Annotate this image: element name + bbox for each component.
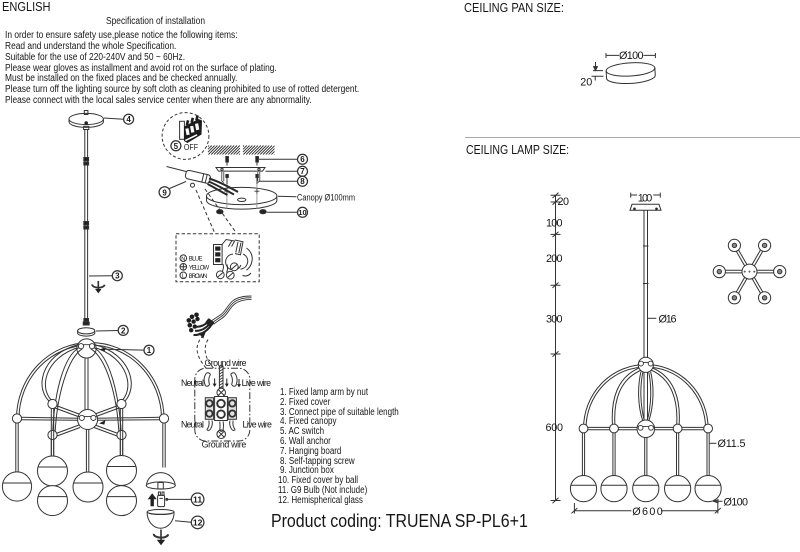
svg-text:BLUE: BLUE	[189, 257, 203, 263]
svg-text:1: 1	[147, 346, 152, 355]
svg-text:Ø100: Ø100	[619, 50, 644, 62]
svg-text:Live wire: Live wire	[243, 419, 272, 429]
svg-text:Ø100: Ø100	[724, 496, 749, 508]
svg-text:11: 11	[193, 494, 202, 504]
svg-text:3: 3	[115, 272, 120, 281]
svg-text:12: 12	[193, 517, 203, 527]
svg-text:Neutral: Neutral	[181, 419, 204, 429]
svg-text:OFF: OFF	[184, 143, 198, 152]
svg-text:10: 10	[298, 208, 306, 217]
svg-text:BROWN: BROWN	[189, 274, 208, 280]
svg-text:Neutral: Neutral	[181, 378, 204, 388]
svg-text:Canopy Ø100mm: Canopy Ø100mm	[297, 192, 355, 202]
svg-text:L: L	[182, 274, 185, 280]
svg-text:Ground wire: Ground wire	[202, 439, 247, 449]
svg-text:7: 7	[300, 167, 305, 176]
svg-text:5: 5	[174, 142, 179, 151]
svg-text:Ø600: Ø600	[632, 506, 663, 518]
svg-text:20: 20	[580, 76, 592, 88]
svg-text:100: 100	[638, 193, 653, 205]
svg-text:Ø11.5: Ø11.5	[718, 438, 746, 450]
svg-text:6: 6	[300, 155, 305, 164]
svg-text:300: 300	[546, 314, 563, 326]
svg-text:100: 100	[546, 218, 563, 230]
svg-text:9: 9	[162, 188, 167, 197]
svg-text:2: 2	[121, 326, 126, 335]
svg-text:4: 4	[126, 115, 131, 124]
svg-text:Ø16: Ø16	[659, 313, 677, 325]
svg-text:Ground wire: Ground wire	[205, 358, 247, 368]
svg-text:YELLOW: YELLOW	[189, 265, 210, 271]
svg-text:Live wire: Live wire	[242, 378, 271, 388]
svg-text:200: 200	[546, 253, 563, 265]
svg-text:20: 20	[558, 196, 570, 208]
svg-text:N: N	[181, 256, 185, 262]
svg-text:8: 8	[300, 177, 305, 186]
svg-text:600: 600	[546, 422, 564, 434]
